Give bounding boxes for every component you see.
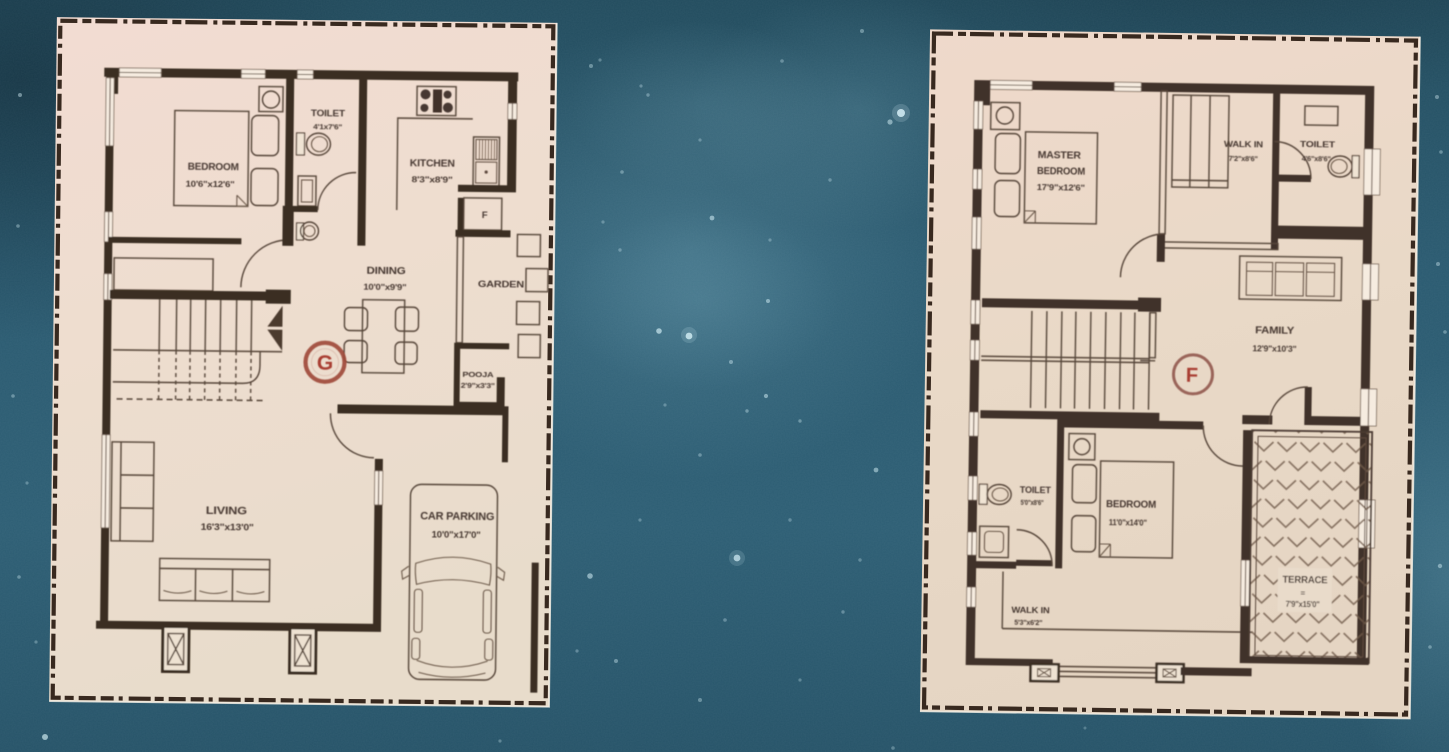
svg-text:16'3"x13'0": 16'3"x13'0" <box>201 522 254 533</box>
svg-text:TERRACE: TERRACE <box>1282 575 1328 587</box>
svg-text:G: G <box>317 352 334 375</box>
svg-text:POOJA: POOJA <box>462 370 494 379</box>
svg-text:10'0"x17'0": 10'0"x17'0" <box>432 529 481 540</box>
svg-text:DINING: DINING <box>366 266 406 277</box>
svg-text:10'0"x9'9": 10'0"x9'9" <box>363 282 406 292</box>
svg-text:TOILET: TOILET <box>311 108 346 118</box>
svg-text:11'0"x14'0": 11'0"x14'0" <box>1109 517 1147 528</box>
svg-text:TOILET: TOILET <box>1020 485 1052 495</box>
svg-text:12'9"x10'3": 12'9"x10'3" <box>1252 343 1296 354</box>
svg-text:7'9"x15'0": 7'9"x15'0" <box>1286 600 1321 610</box>
svg-text:WALK IN: WALK IN <box>1224 139 1263 150</box>
svg-text:MASTER: MASTER <box>1038 150 1082 162</box>
svg-text:2'9"x3'3": 2'9"x3'3" <box>461 383 495 390</box>
svg-text:GARDEN: GARDEN <box>478 279 524 290</box>
svg-text:WALK IN: WALK IN <box>1011 605 1049 616</box>
svg-text:=: = <box>1300 589 1305 598</box>
svg-text:4'1x7'6": 4'1x7'6" <box>313 122 343 131</box>
svg-text:FAMILY: FAMILY <box>1255 325 1295 337</box>
svg-text:LIVING: LIVING <box>206 505 247 517</box>
svg-text:BEDROOM: BEDROOM <box>1037 166 1085 178</box>
svg-text:F: F <box>1186 365 1199 387</box>
svg-text:CAR PARKING: CAR PARKING <box>420 510 494 523</box>
svg-text:F: F <box>482 210 488 221</box>
svg-text:7'2"x8'6": 7'2"x8'6" <box>1229 154 1259 163</box>
svg-text:KITCHEN: KITCHEN <box>410 158 455 170</box>
svg-text:TOILET: TOILET <box>1300 139 1336 150</box>
svg-text:8'3"x8'9": 8'3"x8'9" <box>412 174 453 184</box>
svg-text:17'9"x12'6": 17'9"x12'6" <box>1037 182 1085 193</box>
svg-text:BEDROOM: BEDROOM <box>188 162 239 174</box>
svg-text:4'6"x8'6": 4'6"x8'6" <box>1302 154 1332 163</box>
svg-text:BEDROOM: BEDROOM <box>1106 499 1156 511</box>
svg-text:5'3"x6'2": 5'3"x6'2" <box>1014 618 1043 627</box>
svg-text:10'6"x12'6": 10'6"x12'6" <box>185 179 234 190</box>
svg-text:5'0"x8'6": 5'0"x8'6" <box>1021 498 1045 507</box>
